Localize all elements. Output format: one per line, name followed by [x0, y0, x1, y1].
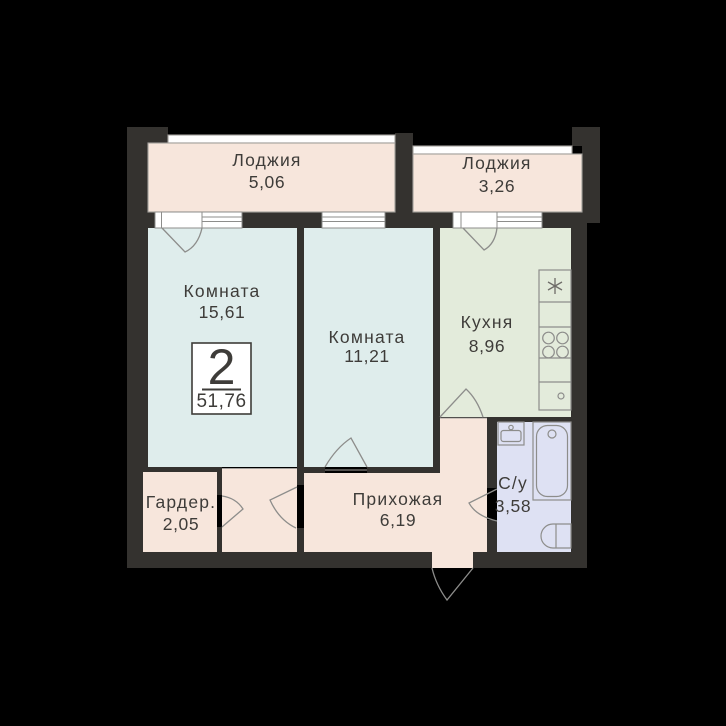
floorplan-svg: 2 51,76 Лоджия 5,06 Лоджия 3,26 Комната … — [0, 0, 726, 726]
room-2-area: 11,21 — [344, 346, 390, 366]
hallway-label: Прихожая — [353, 489, 444, 509]
loggia-1-glazing — [168, 135, 395, 143]
entrance-threshold — [432, 552, 473, 568]
badge-total-area: 51,76 — [196, 391, 246, 412]
loggia-2-area: 3,26 — [479, 176, 515, 196]
apartment-badge: 2 51,76 — [192, 339, 251, 414]
loggia-1-area: 5,06 — [249, 172, 285, 192]
hallway-kitchen-access-floor — [440, 418, 487, 552]
wardrobe-label: Гардер. — [146, 492, 217, 512]
room-1-label: Комната — [184, 281, 261, 301]
corridor-floor — [222, 469, 297, 552]
hallway-area: 6,19 — [380, 510, 416, 530]
room-1-window — [155, 212, 242, 228]
bathroom-area: 3,58 — [495, 496, 531, 516]
floorplan: 2 51,76 Лоджия 5,06 Лоджия 3,26 Комната … — [0, 0, 726, 726]
loggia-2-label: Лоджия — [462, 153, 531, 173]
kitchen-area: 8,96 — [469, 336, 505, 356]
wardrobe-floor — [143, 472, 217, 552]
room-1-area: 15,61 — [199, 302, 246, 322]
bathroom-label: С/у — [498, 473, 528, 493]
badge-rooms-count: 2 — [208, 339, 236, 395]
hallway-floor — [304, 473, 440, 552]
room-2-window — [322, 212, 385, 228]
wardrobe-area: 2,05 — [163, 514, 199, 534]
windows — [155, 212, 542, 228]
kitchen-label: Кухня — [461, 312, 514, 332]
room-2-label: Комната — [329, 327, 406, 347]
loggia-1-label: Лоджия — [232, 150, 301, 170]
